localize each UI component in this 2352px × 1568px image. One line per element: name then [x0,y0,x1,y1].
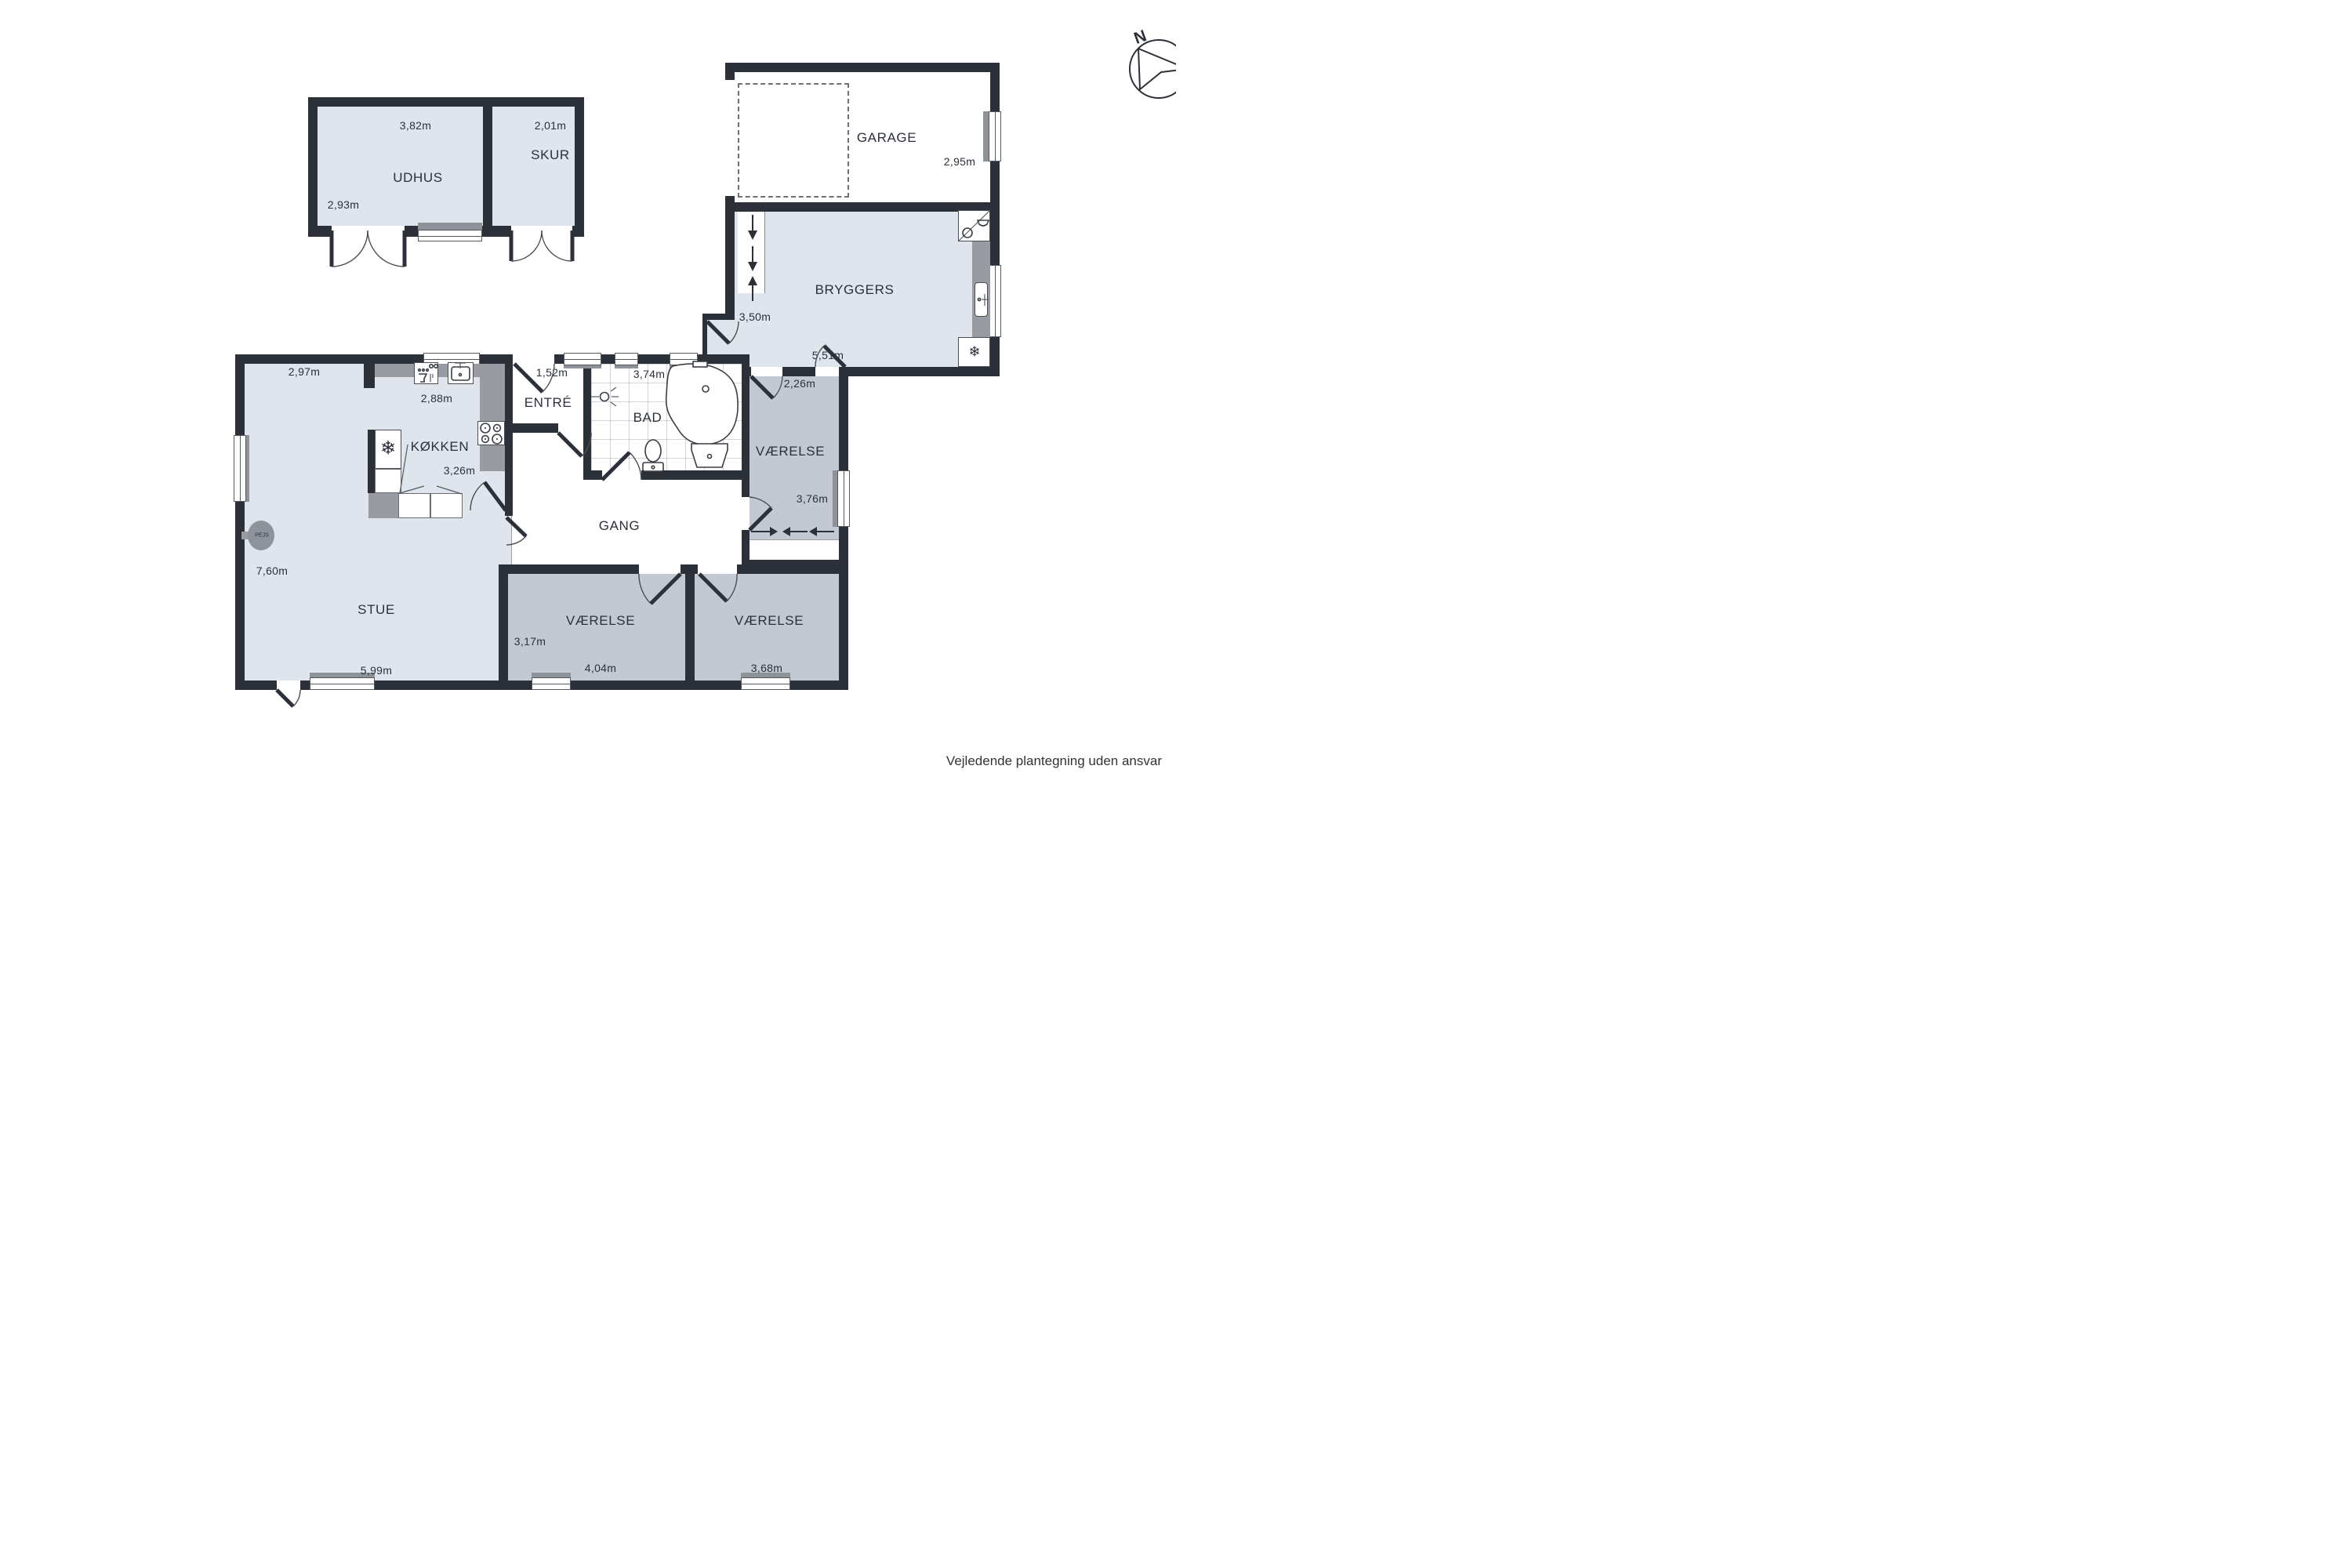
wall [782,367,815,376]
room-label-bryggers: BRYGGERS [815,282,895,298]
bryggers-nook-floor [707,320,735,354]
dim-label-stue-height: 7,60m [256,564,288,577]
wall [499,564,508,690]
wall [483,107,492,226]
window [837,470,850,527]
wall [513,423,558,433]
freezer-snowflake-icon: ❄ [968,344,980,361]
dim-label-udhus-height: 2,93m [328,198,359,211]
wardrobe-strip [750,539,839,560]
window-sill [983,111,989,162]
dim-label-koekken-height: 3,26m [444,464,475,477]
window [234,435,246,502]
floor-divider-line [750,539,839,540]
kitchen-cabinet [430,493,463,518]
dim-label-bryggers-width: 5,51m [812,349,844,361]
wall [681,564,698,574]
wall [499,564,639,574]
dim-label-vaerelse-se-width: 3,68m [751,662,782,674]
dishwasher-icon [414,362,438,384]
wall [308,97,584,107]
stove-icon [477,421,505,445]
kitchen-sink [448,362,474,384]
wall [702,314,735,320]
wall [839,527,848,690]
room-label-vaerelse-ne: VÆRELSE [756,444,825,459]
window [670,353,698,365]
disclaimer-text: Vejledende plantegning uden ansvar [706,753,1162,769]
bad-floor [591,364,742,470]
room-label-koekken: KØKKEN [411,439,469,455]
dim-label-vaerelse-sw-height: 3,17m [514,635,546,648]
wall [583,354,591,480]
wall [575,97,584,237]
room-label-vaerelse-se: VÆRELSE [735,613,804,629]
dim-label-koekken-width: 2,88m [421,392,452,405]
wall [742,560,848,574]
kitchen-counter-corner [368,493,398,518]
room-label-garage: GARAGE [857,130,916,146]
kitchen-cabinet [398,493,430,518]
wall [725,196,735,320]
dim-label-garage: 2,95m [944,155,975,168]
room-label-skur: SKUR [531,147,570,163]
window [564,353,601,365]
wall [308,226,332,237]
dim-label-vaerelse-sw-width: 4,04m [585,662,616,674]
wall [845,367,1000,376]
wall [235,502,245,690]
wall [737,564,742,574]
washing-machine-icon [958,210,990,241]
door-swing [542,230,572,261]
dim-label-skur-width: 2,01m [535,119,566,132]
dim-label-entre: 1,52m [536,366,568,379]
wall [583,470,602,480]
room-label-udhus: UDHUS [393,170,442,186]
compass-icon [1130,40,1176,98]
window [989,265,1001,337]
dim-label-bad: 3,74m [633,368,665,380]
window [418,230,482,241]
wall [735,202,990,212]
window [989,111,1001,162]
bryggers-sink [975,282,988,317]
dim-label-bryggers-height: 3,50m [739,310,771,323]
freezer-snowflake-icon: ❄ [380,437,396,460]
wall [505,354,513,516]
floor-plan: 3,82m 2,93m UDHUS 2,01m SKUR ❄ GARAGE 2,… [0,0,1176,784]
dim-label-vaerelse-ne-width: 2,26m [784,377,815,390]
window [741,677,790,690]
wall [641,470,742,480]
dim-label-udhus-width: 3,82m [400,119,431,132]
window [615,353,638,365]
window [310,677,375,690]
wall [364,354,375,388]
door-swing [332,230,368,267]
kitchen-cabinet [375,469,401,493]
stue-koekken-floor [245,364,511,681]
wall [235,354,245,435]
room-label-entre: ENTRÉ [524,395,572,411]
garage-parking-outline [738,83,849,198]
wall [368,430,375,493]
room-label-vaerelse-sw: VÆRELSE [566,613,635,629]
wall [742,354,750,497]
compass-north-label: N [1131,27,1149,49]
wall [308,97,318,237]
door-swing [277,690,300,706]
wall [725,63,1000,72]
window-sill [418,223,482,230]
dim-label-stue-width: 5,99m [361,664,392,677]
window [532,677,571,690]
stairs-strip [738,212,765,293]
wall [685,574,695,681]
wall [235,681,277,690]
fireplace-label: PEJS [255,533,269,539]
dim-label-vaerelse-ne-height: 3,76m [797,492,828,505]
room-label-stue: STUE [358,602,395,618]
door-swing [368,230,405,267]
room-label-bad: BAD [633,410,662,426]
wall [725,63,735,80]
door-swing [511,230,542,261]
dim-label-stue-top: 2,97m [289,365,320,378]
kitchen-counter-right [480,364,505,471]
wall [572,226,584,237]
wall [839,367,848,470]
room-label-gang: GANG [599,518,640,534]
corridor-floor [513,433,583,479]
